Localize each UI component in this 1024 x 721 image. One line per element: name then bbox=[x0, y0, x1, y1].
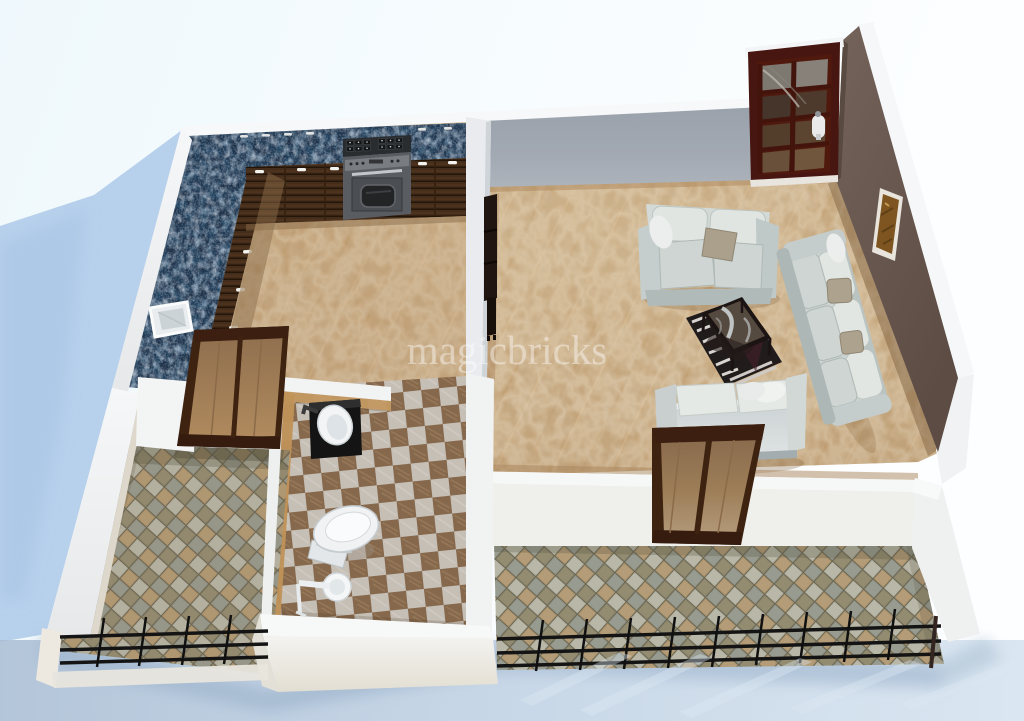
svg-text:magicbricks: magicbricks bbox=[407, 327, 607, 373]
